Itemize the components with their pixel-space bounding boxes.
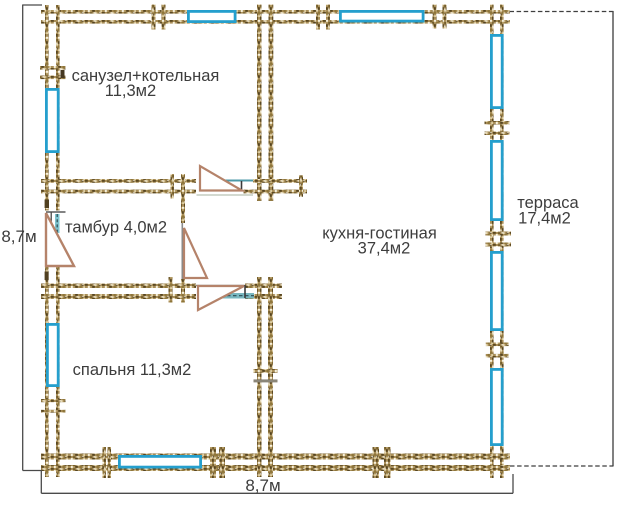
svg-text:8,7м: 8,7м <box>1 227 36 246</box>
svg-text:8,7м: 8,7м <box>245 476 280 495</box>
svg-text:37,4м2: 37,4м2 <box>358 240 411 258</box>
svg-text:17,4м2: 17,4м2 <box>518 210 571 228</box>
svg-text:спальня 11,3м2: спальня 11,3м2 <box>73 361 192 379</box>
svg-text:11,3м2: 11,3м2 <box>105 82 156 100</box>
svg-text:тамбур 4,0м2: тамбур 4,0м2 <box>65 219 167 237</box>
